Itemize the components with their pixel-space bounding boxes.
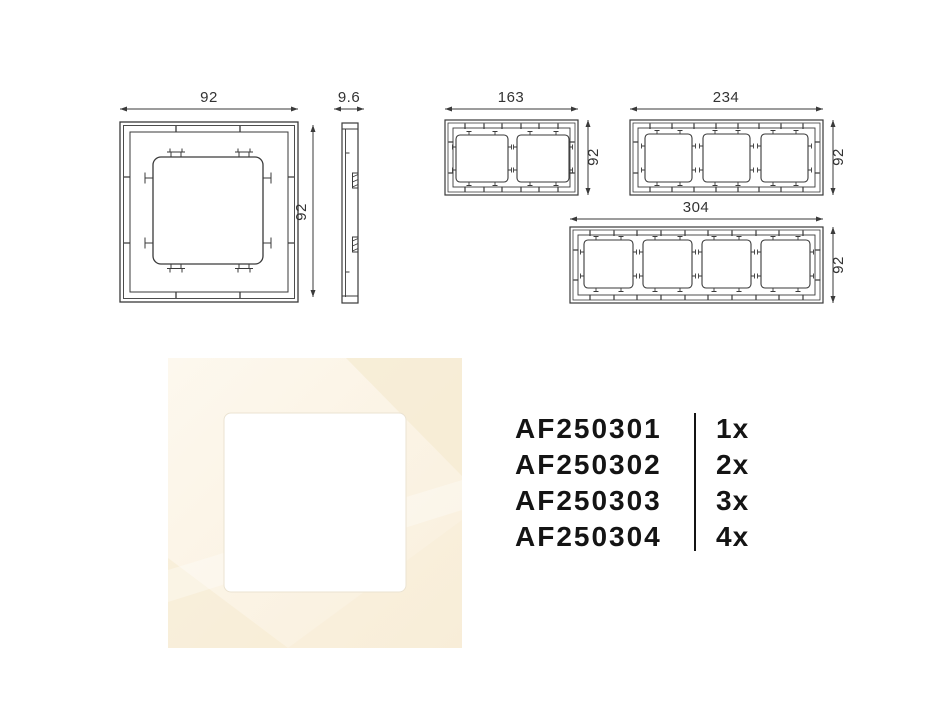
part-code: AF250301 [515,413,662,445]
part-quantity: 1x [716,413,749,445]
part-row: AF250304 4x [515,518,805,554]
page: 92 92 9.6 163 [0,0,925,720]
drawing-3gang-front: 234 92 [620,85,868,207]
part-row: AF250301 1x [515,410,805,446]
dimension-label-width: 304 [683,199,710,216]
drawing-2gang-front: 163 92 [435,85,613,207]
dimension-label-height: 92 [830,148,847,166]
parts-divider-line [694,413,696,551]
product-photo [168,358,462,648]
part-quantity: 3x [716,485,749,517]
drawing-side-profile: 9.6 [330,85,390,320]
dimension-label-height: 92 [293,203,310,221]
photo-frame-opening [224,413,406,592]
dimension-label-depth: 9.6 [338,89,360,106]
part-row: AF250302 2x [515,446,805,482]
part-row: AF250303 3x [515,482,805,518]
drawing-4gang-front: 304 92 [560,198,858,322]
drawing-1gang-front: 92 92 [105,85,335,320]
dimension-label-height: 92 [830,256,847,274]
dimension-label-width: 234 [713,89,740,106]
parts-list: AF250301 1x AF250302 2x AF250303 3x AF25… [515,410,805,560]
part-quantity: 2x [716,449,749,481]
part-code: AF250302 [515,449,662,481]
dimension-label-width: 92 [200,89,218,106]
part-code: AF250304 [515,521,662,553]
dimension-label-height: 92 [585,148,602,166]
dimension-label-width: 163 [498,89,525,106]
part-quantity: 4x [716,521,749,553]
part-code: AF250303 [515,485,662,517]
